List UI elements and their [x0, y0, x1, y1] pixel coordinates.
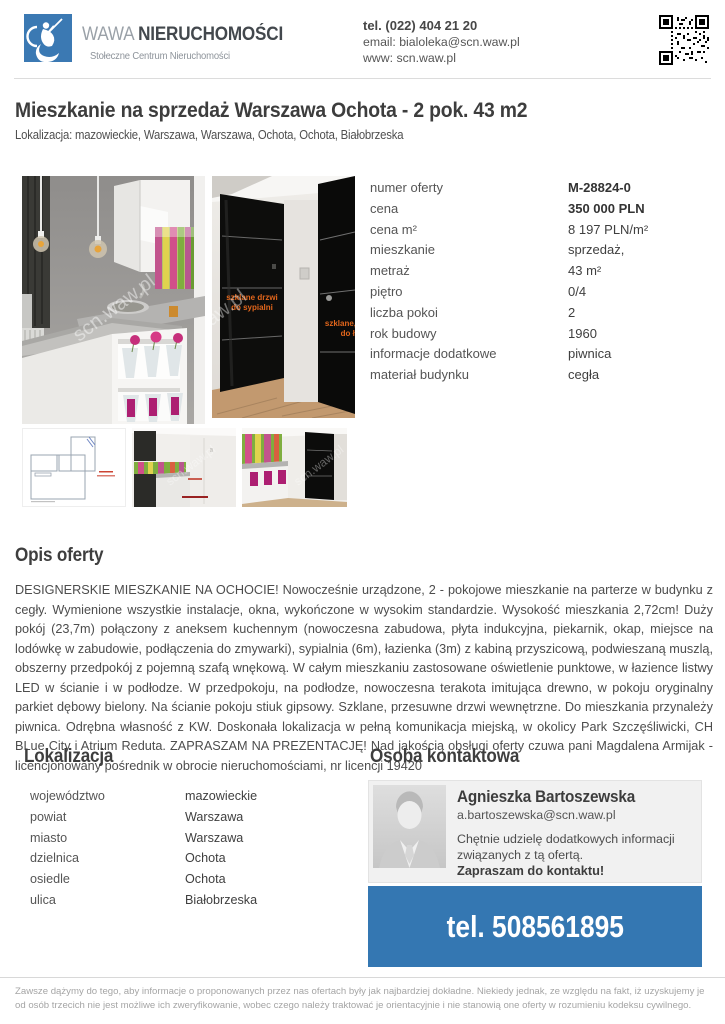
person-placeholder-icon	[373, 785, 446, 868]
thumbnail-floorplan[interactable]	[22, 428, 126, 507]
footer-disclaimer: Zawsze dążymy do tego, aby informacje o …	[15, 985, 715, 1013]
location-row: miastoWarszawa	[30, 828, 350, 849]
detail-row: cena m²8 197 PLN/m²	[370, 220, 715, 241]
brand-word-light: WAWA	[82, 24, 138, 45]
detail-row: rok budowy1960	[370, 324, 715, 345]
agent-card: Agnieszka Bartoszewska a.bartoszewska@sc…	[368, 780, 702, 883]
location-row: dzielnicaOchota	[30, 848, 350, 869]
agent-name: Agnieszka Bartoszewska	[457, 787, 655, 807]
location-row: powiatWarszawa	[30, 807, 350, 828]
location-row: województwomazowieckie	[30, 786, 350, 807]
detail-row: metraż43 m²	[370, 261, 715, 282]
location-table: województwomazowieckie powiatWarszawa mi…	[30, 786, 350, 911]
agent-email-link[interactable]: a.bartoszewska@scn.waw.pl	[457, 808, 616, 822]
header-phone: tel. (022) 404 21 20	[363, 18, 520, 34]
brand-name: WAWA NIERUCHOMOŚCI	[82, 24, 305, 46]
location-line: Lokalizacja: mazowieckie, Warszawa, Wars…	[15, 128, 447, 142]
detail-row: informacje dodatkowepiwnica	[370, 344, 715, 365]
location-row: ulicaBiałobrzeska	[30, 890, 350, 911]
thumbnail-kitchen-wide[interactable]: scn.waw.pl	[132, 428, 236, 507]
qr-code	[659, 15, 709, 65]
mermaid-icon	[24, 14, 72, 62]
agent-avatar	[373, 785, 446, 868]
detail-row: numer ofertyM-28824-0	[370, 178, 715, 199]
section-heading-contact: Osoba kontaktowa	[370, 746, 536, 768]
header-www-link[interactable]: www: scn.waw.pl	[363, 50, 520, 66]
section-heading-location: Lokalizacja	[24, 746, 123, 768]
photo-hallway-main[interactable]: szklane drzwi do sypialni szklane, p do …	[212, 176, 355, 418]
offer-page: WAWA NIERUCHOMOŚCI Stołeczne Centrum Nie…	[0, 0, 725, 1024]
detail-row: liczba pokoi2	[370, 303, 715, 324]
header-contact-block: tel. (022) 404 21 20 email: bialoleka@sc…	[363, 18, 520, 66]
location-row: osiedleOchota	[30, 869, 350, 890]
photo-annotation-door2-line2: do ła	[341, 329, 355, 338]
agent-message: Chętnie udzielę dodatkowych informacji z…	[457, 831, 675, 863]
brand-word-bold: NIERUCHOMOŚCI	[138, 24, 283, 45]
agent-cta: Zapraszam do kontaktu!	[457, 863, 604, 878]
photo-kitchen-main[interactable]: scn.waw.pl	[22, 176, 205, 424]
detail-row: mieszkaniesprzedaż,	[370, 240, 715, 261]
header-email-link[interactable]: email: bialoleka@scn.waw.pl	[363, 34, 520, 50]
header-divider	[14, 78, 711, 79]
section-heading-description: Opis oferty	[15, 545, 113, 567]
brand-tagline: Stołeczne Centrum Nieruchomości	[90, 50, 245, 62]
photo-annotation-door2-line1: szklane, p	[325, 319, 355, 328]
detail-row: cena350 000 PLN	[370, 199, 715, 220]
company-logo	[24, 14, 72, 62]
phone-number: tel. 508561895	[446, 909, 623, 945]
page-title: Mieszkanie na sprzedaż Warszawa Ochota -…	[15, 98, 725, 123]
detail-row: piętro0/4	[370, 282, 715, 303]
footer-divider	[0, 977, 725, 978]
thumbnail-room-door[interactable]: scn.waw.pl	[242, 428, 347, 507]
phone-banner[interactable]: tel. 508561895	[368, 886, 702, 967]
offer-details-table: numer ofertyM-28824-0 cena350 000 PLN ce…	[370, 178, 715, 386]
qr-code-icon	[659, 15, 709, 65]
detail-row: materiał budynkucegła	[370, 365, 715, 386]
